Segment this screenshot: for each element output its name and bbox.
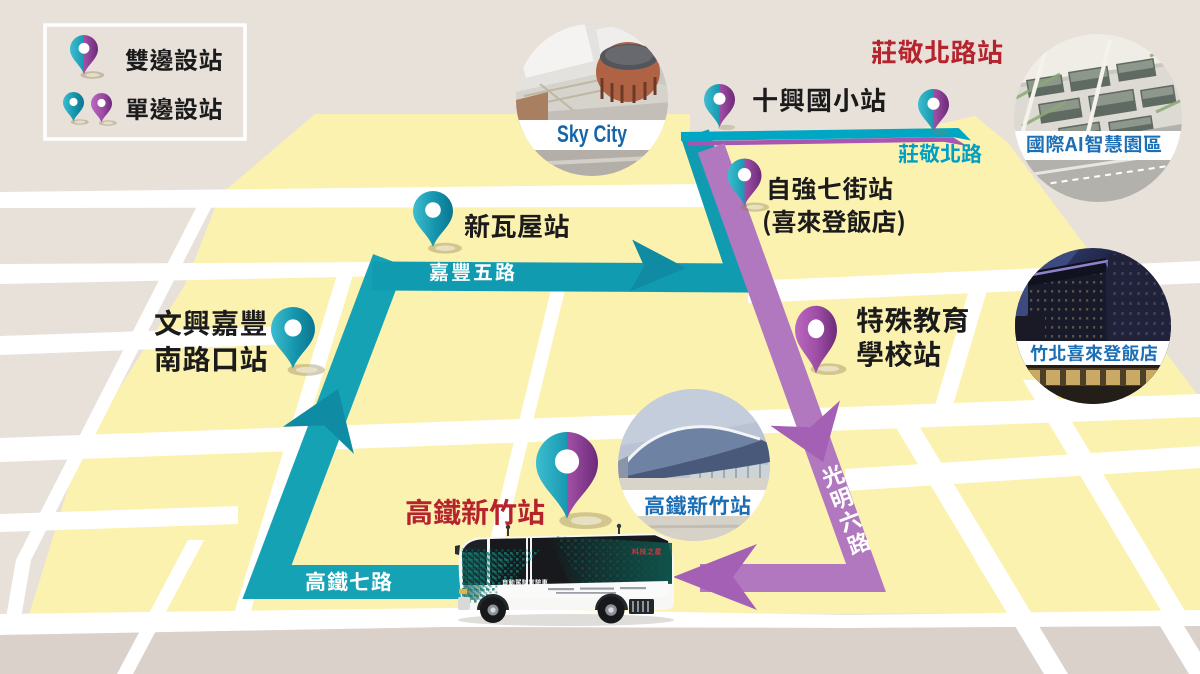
svg-text:Sky City: Sky City (557, 121, 627, 148)
